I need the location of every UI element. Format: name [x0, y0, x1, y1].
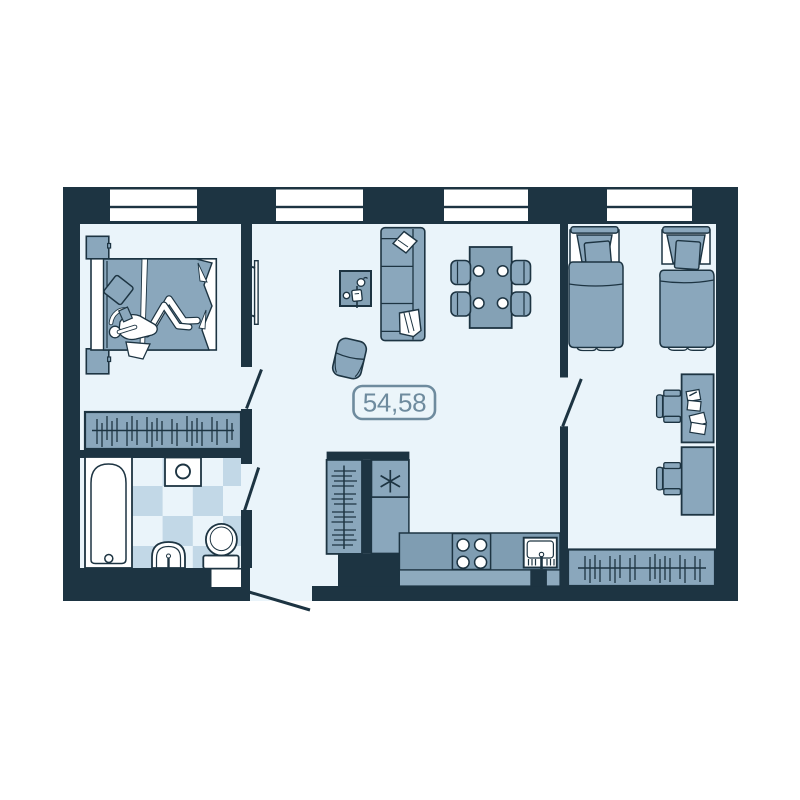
svg-text:54,58: 54,58 [363, 388, 427, 418]
